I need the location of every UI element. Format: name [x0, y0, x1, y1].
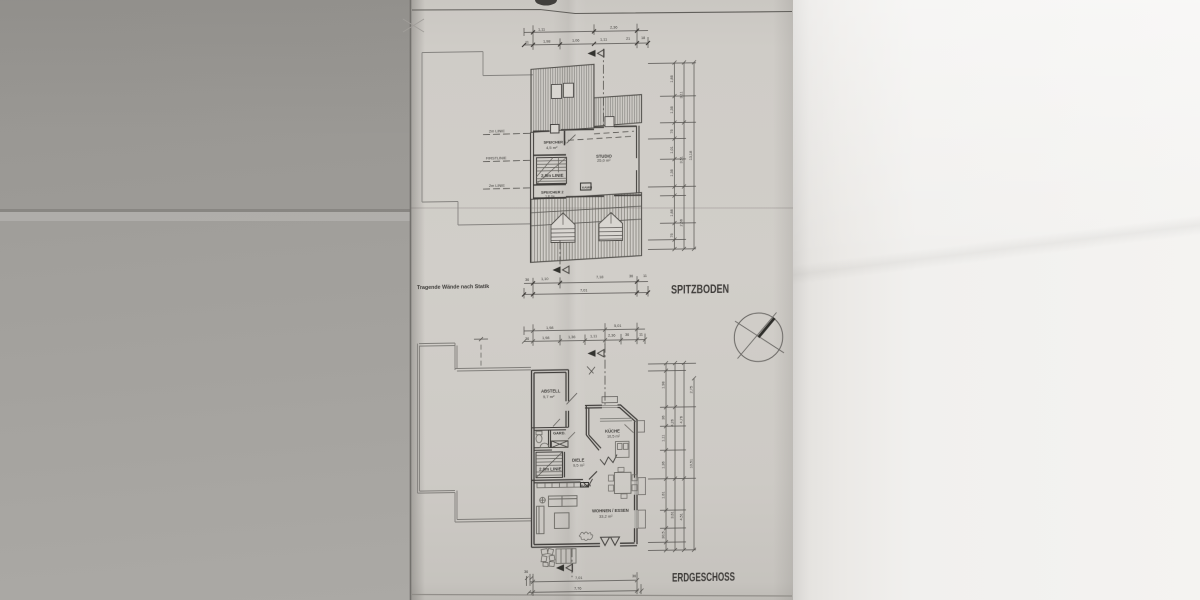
svg-text:1,98: 1,98 [543, 40, 550, 44]
svg-text:SPITZBODEN: SPITZBODEN [671, 284, 729, 297]
svg-text:ERDGESCHOSS: ERDGESCHOSS [672, 572, 735, 585]
svg-text:1,36: 1,36 [670, 169, 674, 176]
svg-text:4,76: 4,76 [680, 416, 684, 423]
svg-text:18: 18 [641, 36, 645, 40]
svg-text:2m LINIE: 2m LINIE [489, 129, 505, 133]
svg-text:36: 36 [525, 278, 529, 282]
svg-text:30,5: 30,5 [662, 531, 666, 538]
svg-text:36: 36 [629, 274, 633, 278]
svg-text:WOHNEN / ESSEN: WOHNEN / ESSEN [592, 508, 629, 514]
svg-text:1,98: 1,98 [542, 336, 549, 340]
svg-text:5,7 m²: 5,7 m² [543, 394, 555, 399]
svg-text:13,18: 13,18 [689, 151, 693, 161]
svg-text:2,0m LINIE: 2,0m LINIE [541, 173, 564, 178]
svg-text:1,11: 1,11 [600, 38, 607, 42]
svg-text:11: 11 [639, 333, 643, 337]
svg-text:2,36: 2,36 [608, 334, 615, 338]
svg-text:21: 21 [626, 37, 630, 41]
svg-text:11: 11 [643, 274, 647, 278]
svg-text:1,98: 1,98 [662, 381, 666, 388]
svg-text:2,36: 2,36 [610, 25, 617, 29]
svg-text:1,88: 1,88 [670, 209, 674, 216]
svg-text:1,10: 1,10 [541, 277, 548, 281]
svg-text:1,86: 1,86 [670, 75, 674, 82]
svg-text:GARD.: GARD. [553, 430, 566, 435]
svg-text:10,5 m²: 10,5 m² [607, 434, 621, 438]
svg-text:2,66: 2,66 [680, 219, 684, 226]
svg-text:KÜCHE: KÜCHE [605, 428, 620, 433]
svg-text:KAMIN: KAMIN [581, 483, 591, 487]
svg-text:Tragende Wände nach Statik: Tragende Wände nach Statik [417, 284, 489, 291]
svg-text:3,61: 3,61 [671, 511, 675, 518]
svg-text:4,51: 4,51 [680, 513, 684, 520]
svg-text:1,06: 1,06 [572, 39, 579, 43]
svg-text:5,01: 5,01 [614, 324, 621, 328]
svg-text:7,01: 7,01 [580, 288, 587, 292]
svg-text:1,61: 1,61 [662, 491, 666, 498]
svg-text:1,98: 1,98 [546, 326, 553, 330]
svg-text:4,26: 4,26 [671, 419, 675, 426]
svg-text:36: 36 [662, 416, 666, 420]
svg-text:76: 76 [670, 233, 674, 237]
svg-text:3,51: 3,51 [680, 156, 684, 163]
svg-text:10,51: 10,51 [690, 459, 694, 469]
svg-text:25,0 m²: 25,0 m² [597, 158, 611, 163]
svg-text:1,01: 1,01 [670, 146, 674, 153]
svg-text:1,11: 1,11 [662, 435, 666, 442]
svg-text:76: 76 [670, 129, 674, 133]
svg-text:4,5 m²: 4,5 m² [546, 145, 558, 150]
svg-text:1,36: 1,36 [568, 335, 575, 339]
svg-text:7,18: 7,18 [596, 275, 603, 279]
svg-text:33,2 m²: 33,2 m² [599, 514, 613, 519]
svg-text:2,75: 2,75 [690, 386, 694, 393]
svg-text:ABSTELL: ABSTELL [541, 388, 561, 393]
svg-text:11: 11 [525, 40, 529, 44]
svg-text:1,11: 1,11 [538, 28, 545, 32]
svg-text:9,5 m²: 9,5 m² [573, 463, 585, 468]
svg-text:36: 36 [625, 333, 629, 337]
svg-text:2,0m LINIE: 2,0m LINIE [539, 466, 562, 471]
svg-text:3,11: 3,11 [680, 91, 684, 98]
svg-text:1,11: 1,11 [590, 334, 597, 338]
svg-text:1,36: 1,36 [662, 461, 666, 468]
svg-text:2m LINIE: 2m LINIE [489, 184, 505, 188]
svg-text:7,76: 7,76 [574, 587, 581, 591]
svg-text:36: 36 [524, 570, 528, 574]
svg-text:KAMIN: KAMIN [582, 185, 593, 189]
svg-text:36: 36 [525, 337, 529, 341]
svg-text:FIRSTLINIE: FIRSTLINIE [486, 156, 507, 160]
svg-text:1,36: 1,36 [670, 106, 674, 113]
svg-text:7,01: 7,01 [575, 576, 582, 580]
svg-text:36: 36 [632, 574, 636, 578]
